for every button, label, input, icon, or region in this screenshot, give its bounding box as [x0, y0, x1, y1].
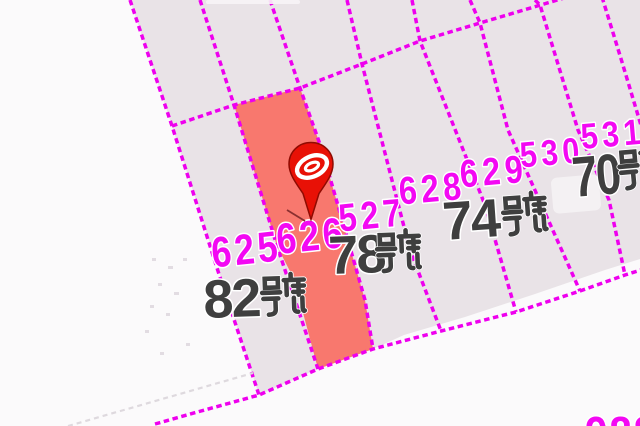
svg-text:74: 74 — [441, 188, 503, 252]
svg-text:70: 70 — [569, 141, 622, 209]
svg-text:82: 82 — [202, 268, 260, 330]
svg-text:988: 988 — [585, 409, 640, 426]
